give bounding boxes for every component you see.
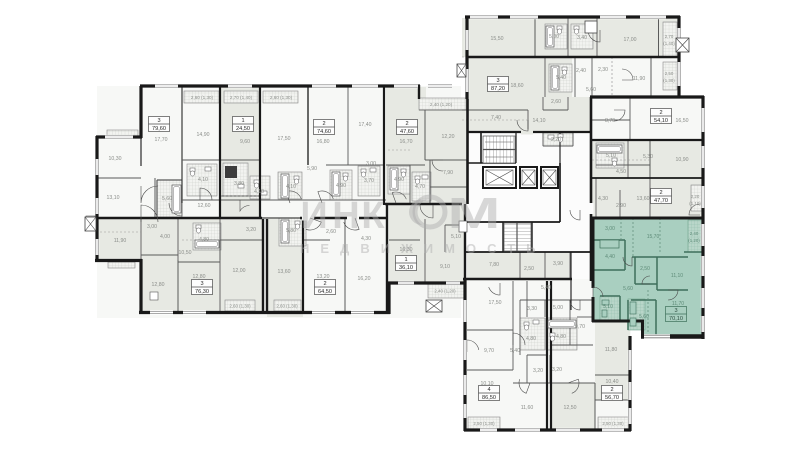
svg-text:4,80: 4,80 — [199, 237, 209, 243]
svg-text:10,90: 10,90 — [676, 157, 689, 163]
svg-text:12,50: 12,50 — [564, 405, 577, 411]
svg-text:5,30: 5,30 — [643, 154, 653, 160]
svg-text:15,50: 15,50 — [491, 36, 504, 42]
svg-text:4,10: 4,10 — [286, 184, 296, 190]
svg-text:47,70: 47,70 — [654, 198, 668, 204]
svg-text:10,10: 10,10 — [481, 381, 494, 387]
svg-text:5,60: 5,60 — [623, 286, 633, 292]
svg-text:4: 4 — [487, 387, 490, 393]
svg-text:2,20: 2,20 — [691, 194, 700, 199]
svg-text:М: М — [447, 188, 500, 238]
svg-text:5,00: 5,00 — [553, 305, 563, 311]
svg-text:3,00: 3,00 — [605, 226, 615, 232]
svg-text:3,00: 3,00 — [147, 224, 157, 230]
svg-text:2,50: 2,50 — [640, 266, 650, 272]
svg-text:5,60: 5,60 — [639, 314, 649, 320]
svg-text:87,20: 87,20 — [491, 86, 505, 92]
svg-text:5,40: 5,40 — [541, 285, 551, 291]
svg-text:2: 2 — [659, 110, 662, 116]
svg-text:3,40: 3,40 — [577, 35, 587, 41]
svg-text:9,70: 9,70 — [484, 348, 494, 354]
svg-text:14,10: 14,10 — [533, 118, 546, 124]
svg-text:2,60 (1,30): 2,60 (1,30) — [270, 95, 293, 100]
svg-text:2,70: 2,70 — [665, 34, 674, 39]
svg-text:12,20: 12,20 — [442, 134, 455, 140]
svg-text:47,60: 47,60 — [400, 129, 414, 135]
svg-text:17,00: 17,00 — [624, 37, 637, 43]
svg-text:5,60: 5,60 — [586, 87, 596, 93]
svg-text:16,70: 16,70 — [400, 139, 413, 145]
svg-text:5,40: 5,40 — [510, 348, 520, 354]
svg-text:2: 2 — [405, 121, 408, 127]
svg-text:3,20: 3,20 — [246, 227, 256, 233]
svg-text:79,60: 79,60 — [152, 126, 166, 132]
svg-text:4,10: 4,10 — [198, 177, 208, 183]
svg-text:2,60: 2,60 — [551, 99, 561, 105]
svg-text:5,40: 5,40 — [556, 75, 566, 81]
svg-text:1: 1 — [241, 118, 244, 124]
svg-text:2: 2 — [610, 387, 613, 393]
svg-text:12,80: 12,80 — [193, 274, 206, 280]
svg-text:9,70: 9,70 — [575, 324, 585, 330]
svg-text:4,40: 4,40 — [605, 254, 615, 260]
svg-text:16,80: 16,80 — [317, 139, 330, 145]
svg-text:4,90: 4,90 — [394, 177, 404, 183]
svg-text:3,00: 3,00 — [366, 161, 376, 167]
svg-text:11,90: 11,90 — [633, 76, 646, 82]
svg-text:8,70: 8,70 — [605, 118, 615, 124]
svg-text:2,40 (1,20): 2,40 (1,20) — [430, 102, 453, 107]
svg-text:54,10: 54,10 — [654, 118, 668, 124]
svg-text:(1,30): (1,30) — [663, 78, 675, 83]
svg-text:15,70: 15,70 — [647, 234, 660, 240]
svg-text:5,00: 5,00 — [549, 34, 559, 40]
svg-text:11,60: 11,60 — [521, 405, 534, 411]
svg-text:4,30: 4,30 — [598, 196, 608, 202]
svg-text:3: 3 — [200, 281, 203, 287]
svg-text:3: 3 — [674, 308, 677, 314]
svg-text:14,90: 14,90 — [197, 132, 210, 138]
svg-text:5,80: 5,80 — [286, 228, 296, 234]
svg-text:5,10: 5,10 — [603, 304, 613, 310]
svg-text:2,50: 2,50 — [665, 71, 674, 76]
svg-text:16,20: 16,20 — [358, 276, 371, 282]
svg-text:4,70: 4,70 — [415, 184, 425, 190]
svg-text:13,10: 13,10 — [107, 195, 120, 201]
svg-text:4,90: 4,90 — [336, 183, 346, 189]
svg-text:11,10: 11,10 — [671, 273, 683, 279]
svg-text:3: 3 — [496, 78, 499, 84]
svg-text:2: 2 — [659, 190, 662, 196]
svg-text:24,50: 24,50 — [236, 126, 250, 132]
svg-text:13,60: 13,60 — [278, 269, 291, 275]
svg-text:13,60: 13,60 — [637, 196, 650, 202]
svg-text:18,60: 18,60 — [511, 83, 524, 89]
svg-text:2: 2 — [323, 281, 326, 287]
svg-text:Н: Н — [332, 195, 359, 237]
svg-text:3: 3 — [157, 118, 160, 124]
svg-text:5,90: 5,90 — [307, 166, 317, 172]
svg-text:4,00: 4,00 — [160, 234, 170, 240]
svg-text:11,70: 11,70 — [672, 301, 684, 307]
svg-text:36,10: 36,10 — [399, 265, 413, 271]
svg-text:2,70 (1,40): 2,70 (1,40) — [230, 95, 253, 100]
svg-text:4,50: 4,50 — [616, 169, 626, 175]
svg-text:56,70: 56,70 — [605, 395, 619, 401]
svg-text:17,50: 17,50 — [278, 136, 291, 142]
svg-text:74,60: 74,60 — [317, 129, 331, 135]
svg-text:4,10: 4,10 — [254, 189, 264, 195]
svg-text:86,50: 86,50 — [482, 395, 496, 401]
svg-text:12,00: 12,00 — [233, 268, 246, 274]
svg-text:10,50: 10,50 — [179, 250, 192, 256]
svg-text:2,40: 2,40 — [690, 231, 699, 236]
svg-text:3,30: 3,30 — [527, 306, 537, 312]
svg-text:10,40: 10,40 — [606, 379, 619, 385]
svg-text:2,40 (1,20): 2,40 (1,20) — [434, 289, 456, 294]
svg-text:70,10: 70,10 — [669, 316, 683, 322]
svg-text:10,30: 10,30 — [109, 156, 122, 162]
svg-text:(1,20): (1,20) — [688, 238, 700, 243]
svg-text:2,60 (1,30): 2,60 (1,30) — [191, 95, 214, 100]
svg-text:2,50 (1,30): 2,50 (1,30) — [602, 421, 624, 426]
svg-text:4,80: 4,80 — [526, 336, 536, 342]
svg-text:7,80: 7,80 — [489, 262, 499, 268]
svg-text:7,40: 7,40 — [491, 115, 501, 121]
svg-text:2,20: 2,20 — [551, 137, 561, 143]
svg-text:К: К — [361, 195, 385, 237]
svg-text:17,40: 17,40 — [359, 122, 372, 128]
svg-text:9,60: 9,60 — [240, 139, 250, 145]
svg-text:12,80: 12,80 — [152, 282, 165, 288]
svg-text:2,90: 2,90 — [616, 203, 626, 209]
svg-text:12,60: 12,60 — [198, 203, 211, 209]
svg-text:(1,40): (1,40) — [663, 41, 675, 46]
svg-text:4,80: 4,80 — [556, 334, 566, 340]
svg-text:2,50 (1,30): 2,50 (1,30) — [473, 421, 495, 426]
svg-text:2: 2 — [322, 121, 325, 127]
svg-text:3,90: 3,90 — [553, 261, 563, 267]
svg-text:1: 1 — [404, 257, 407, 263]
svg-text:17,50: 17,50 — [489, 300, 502, 306]
svg-text:2,60 (1,30): 2,60 (1,30) — [229, 304, 251, 309]
svg-text:5,60: 5,60 — [162, 196, 172, 202]
svg-text:9,10: 9,10 — [440, 264, 450, 270]
svg-text:5,10: 5,10 — [606, 153, 616, 159]
svg-text:2,30: 2,30 — [598, 67, 608, 73]
svg-text:3,20: 3,20 — [533, 368, 543, 374]
svg-text:2,60 (1,30): 2,60 (1,30) — [276, 304, 298, 309]
svg-text:2,50: 2,50 — [524, 266, 534, 272]
svg-text:И: И — [300, 195, 327, 237]
svg-text:13,20: 13,20 — [317, 274, 330, 280]
svg-text:2,40: 2,40 — [576, 68, 586, 74]
svg-text:16,50: 16,50 — [676, 118, 689, 124]
svg-text:17,70: 17,70 — [155, 137, 168, 143]
svg-text:НЕДВИЖИМОСТЬ: НЕДВИЖИМОСТЬ — [300, 241, 546, 256]
svg-text:3,20: 3,20 — [552, 367, 562, 373]
svg-text:64,50: 64,50 — [318, 289, 332, 295]
svg-text:76,30: 76,30 — [195, 289, 209, 295]
svg-text:3,70: 3,70 — [364, 178, 374, 184]
svg-text:7,90: 7,90 — [443, 170, 453, 176]
svg-text:(1,10): (1,10) — [689, 201, 701, 206]
svg-text:11,90: 11,90 — [114, 238, 127, 244]
svg-text:3,80: 3,80 — [234, 181, 244, 187]
svg-text:11,80: 11,80 — [605, 347, 618, 353]
